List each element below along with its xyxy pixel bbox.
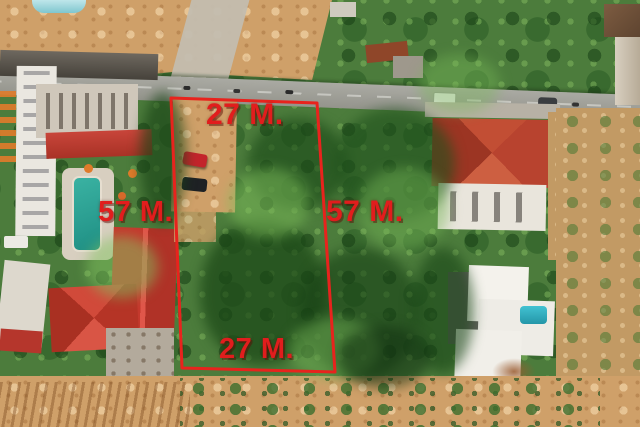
plot-boundary-line xyxy=(171,98,335,372)
dimension-label-top: 27 M. xyxy=(206,100,284,130)
dimension-label-right: 57 M. xyxy=(326,197,404,227)
plot-boundary-overlay xyxy=(0,0,640,427)
aerial-land-plot-photo: 27 M. 57 M. 57 M. 27 M. xyxy=(0,0,640,427)
dimension-label-left: 57 M. xyxy=(98,198,173,227)
dimension-label-bottom: 27 M. xyxy=(219,335,294,364)
